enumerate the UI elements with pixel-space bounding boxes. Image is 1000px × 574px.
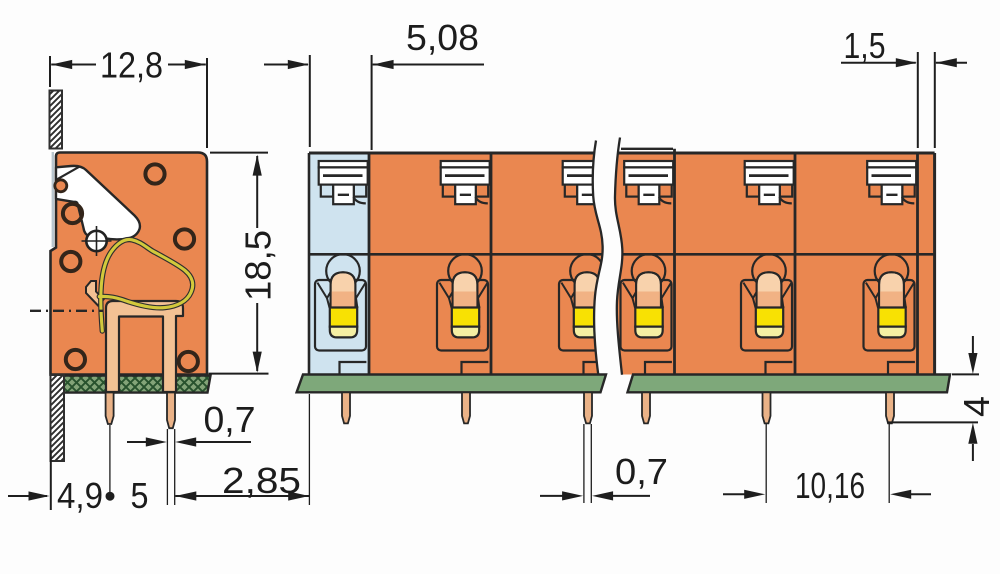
- svg-text:12,8: 12,8: [100, 45, 163, 86]
- svg-text:0,7: 0,7: [204, 399, 256, 440]
- svg-text:0,7: 0,7: [615, 451, 668, 492]
- svg-text:10,16: 10,16: [795, 465, 865, 506]
- svg-text:5: 5: [131, 475, 149, 516]
- svg-text:5,08: 5,08: [406, 17, 479, 58]
- svg-text:18,5: 18,5: [238, 230, 279, 301]
- svg-text:1,5: 1,5: [844, 25, 886, 66]
- svg-text:2,85: 2,85: [222, 460, 301, 501]
- svg-text:4,9: 4,9: [57, 475, 103, 516]
- svg-text:4: 4: [956, 396, 997, 417]
